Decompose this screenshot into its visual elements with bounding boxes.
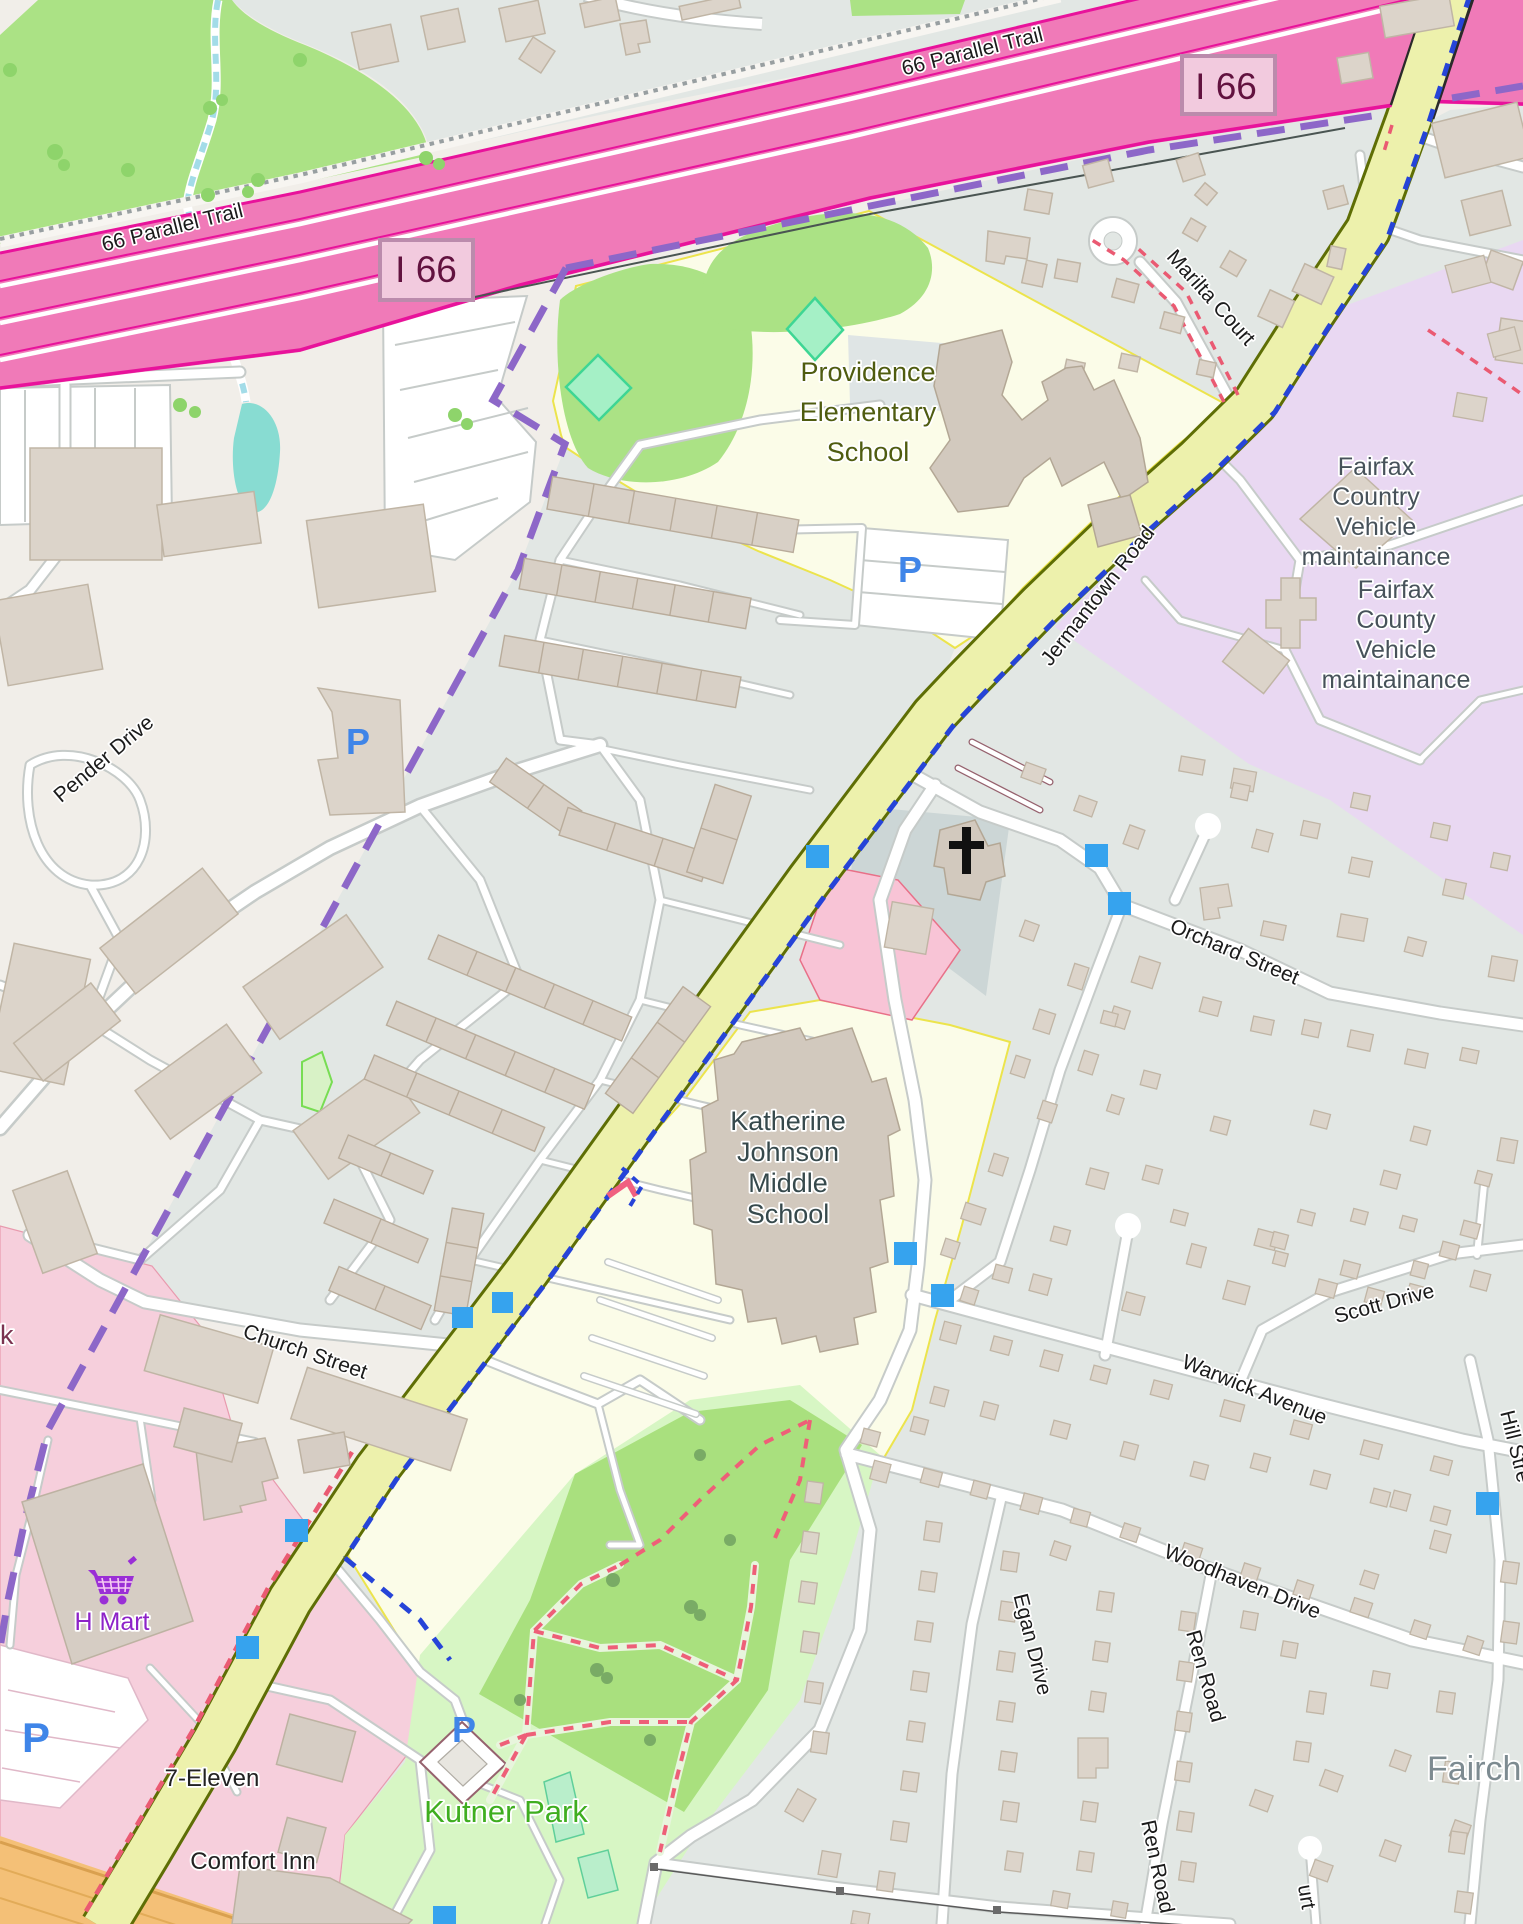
svg-text:Country: Country xyxy=(1332,483,1420,511)
svg-text:Elementary: Elementary xyxy=(800,397,937,427)
svg-text:Vehicle: Vehicle xyxy=(1336,513,1417,541)
svg-text:Vehicle: Vehicle xyxy=(1356,636,1437,664)
svg-text:P: P xyxy=(898,549,922,590)
svg-text:maintainance: maintainance xyxy=(1322,666,1471,694)
svg-text:School: School xyxy=(747,1199,830,1229)
svg-text:Fairch: Fairch xyxy=(1427,1750,1521,1788)
svg-text:maintainance: maintainance xyxy=(1302,543,1451,571)
svg-text:Johnson: Johnson xyxy=(737,1137,839,1167)
svg-text:Comfort Inn: Comfort Inn xyxy=(190,1848,315,1875)
svg-text:k: k xyxy=(0,1320,14,1350)
svg-text:Katherine: Katherine xyxy=(730,1106,846,1136)
svg-text:H Mart: H Mart xyxy=(75,1608,150,1636)
svg-text:urt: urt xyxy=(1293,1883,1320,1911)
svg-text:Kutner Park: Kutner Park xyxy=(424,1794,588,1829)
svg-text:P: P xyxy=(22,1714,50,1761)
svg-text:P: P xyxy=(452,1709,476,1750)
svg-text:County: County xyxy=(1356,606,1436,634)
svg-text:Middle: Middle xyxy=(748,1168,828,1198)
svg-text:Fairfax: Fairfax xyxy=(1338,453,1415,481)
svg-text:Fairfax: Fairfax xyxy=(1358,576,1435,604)
svg-text:I 66: I 66 xyxy=(1195,66,1257,107)
svg-text:School: School xyxy=(827,437,910,467)
svg-text:Providence: Providence xyxy=(800,357,935,387)
svg-text:7-Eleven: 7-Eleven xyxy=(165,1765,260,1792)
svg-text:I 66: I 66 xyxy=(395,249,457,290)
svg-text:P: P xyxy=(346,721,370,762)
